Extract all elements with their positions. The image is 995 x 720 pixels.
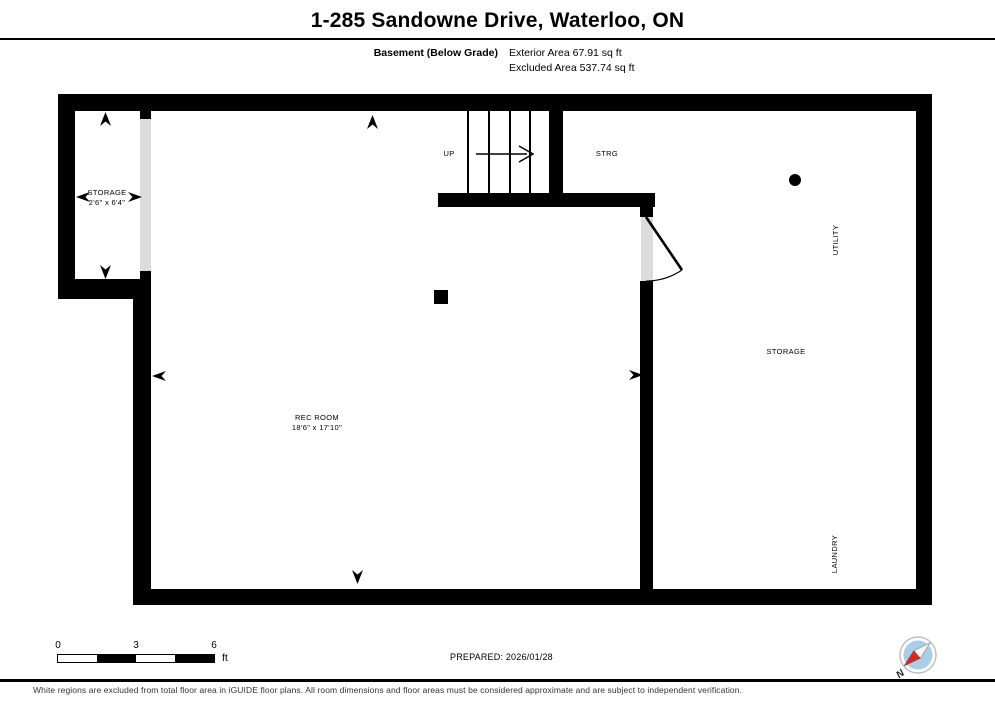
wall-strip-tab-top <box>140 111 151 119</box>
dim-arrow-left <box>152 371 166 381</box>
room-label-storage-left: STORAGE 2'6" x 6'4" <box>88 188 127 208</box>
rec-room-dims: 18'6" x 17'10" <box>292 423 342 433</box>
scale-tick-3: 3 <box>133 640 139 651</box>
footer-divider <box>0 679 995 682</box>
label-up: UP <box>443 149 454 159</box>
exterior-area: Exterior Area 67.91 sq ft <box>509 47 622 59</box>
compass-icon: N <box>892 630 944 682</box>
excluded-area: Excluded Area 537.74 sq ft <box>509 62 635 74</box>
wall-bottom <box>133 589 932 605</box>
room-label-utility: UTILITY <box>831 225 841 255</box>
wall-right <box>916 94 932 605</box>
floor-drain-dot <box>789 174 801 186</box>
door-swing-icon <box>638 209 700 293</box>
scale-segment <box>175 655 214 662</box>
storage-left-name: STORAGE <box>88 188 127 198</box>
wall-stairs-right <box>549 111 563 193</box>
wall-under-stairs <box>438 193 655 207</box>
floorplan-page: 1-285 Sandowne Drive, Waterloo, ON Basem… <box>0 0 995 720</box>
scale-unit: ft <box>222 652 228 664</box>
scale-segment <box>136 655 175 662</box>
rec-room-name: REC ROOM <box>292 413 342 423</box>
page-title: 1-285 Sandowne Drive, Waterloo, ON <box>0 9 995 33</box>
storage-left-dims: 2'6" x 6'4" <box>88 198 127 208</box>
room-label-strg: STRG <box>596 149 618 159</box>
prepared-date: PREPARED: 2026/01/28 <box>450 652 553 662</box>
dim-arrow-up <box>100 112 111 126</box>
scale-segment <box>97 655 136 662</box>
support-post <box>434 290 448 304</box>
floor-label: Basement (Below Grade) <box>250 47 498 59</box>
scale-tick-0: 0 <box>55 640 61 651</box>
wall-strip-tab-bottom <box>140 271 151 279</box>
scale-tick-6: 6 <box>211 640 217 651</box>
scale-bar <box>57 654 215 663</box>
dim-arrow-down <box>352 570 363 584</box>
stairs-direction-arrow <box>472 144 542 164</box>
wall-left-upper <box>58 94 75 299</box>
wall-left-lower <box>133 279 151 605</box>
disclaimer-text: White regions are excluded from total fl… <box>33 685 742 695</box>
room-label-storage-right: STORAGE <box>767 347 806 357</box>
dim-arrow-down <box>100 265 111 279</box>
header-divider <box>0 38 995 40</box>
scale-segment <box>58 655 97 662</box>
dim-arrow-up <box>367 115 378 129</box>
storage-wall-opening <box>140 119 151 271</box>
room-label-laundry: LAUNDRY <box>830 535 840 573</box>
wall-divider-lower <box>640 281 653 589</box>
room-label-rec-room: REC ROOM 18'6" x 17'10" <box>292 413 342 433</box>
wall-top <box>58 94 932 111</box>
